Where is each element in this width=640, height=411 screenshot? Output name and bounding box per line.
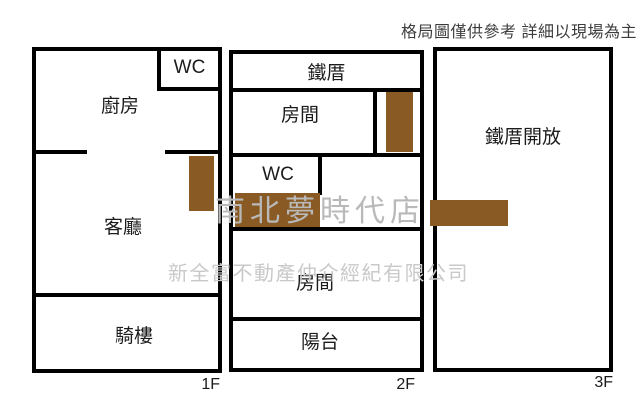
wall-kitchen-left xyxy=(32,150,87,154)
floorplan-canvas: 格局圖僅供參考 詳細以現場為主 WC 廚房 客廳 騎樓 1F 鐵厝 房間 WC xyxy=(0,0,640,411)
staircase-3f xyxy=(430,200,508,226)
disclaimer-text: 格局圖僅供參考 詳細以現場為主 xyxy=(401,18,637,42)
room-label-living: 客廳 xyxy=(73,216,173,240)
watermark-store-name: 南北夢時代店 xyxy=(215,186,425,230)
wall-kitchen-right xyxy=(165,150,222,154)
room-label-kitchen: 廚房 xyxy=(70,95,170,119)
wall-room-upper-right xyxy=(373,92,377,157)
staircase-1f xyxy=(189,156,214,211)
floor-label-2f: 2F xyxy=(371,376,415,394)
watermark-company-name: 新全富不動產仲介經紀有限公司 xyxy=(168,257,469,286)
wall-living-arcade xyxy=(32,293,222,297)
room-label-wc-1f: WC xyxy=(161,56,218,80)
floor-label-3f: 3F xyxy=(569,374,613,392)
room-wc-1f: WC xyxy=(157,51,218,91)
floorplan-3f: 鐵厝開放 xyxy=(433,47,613,372)
room-label-arcade: 騎樓 xyxy=(84,325,184,349)
room-label-balcony: 陽台 xyxy=(270,331,370,355)
room-label-open-iron-shed: 鐵厝開放 xyxy=(437,126,609,150)
room-label-iron-shed: 鐵厝 xyxy=(233,62,420,86)
wall-room-lower-bottom xyxy=(229,317,424,321)
floor-label-1f: 1F xyxy=(176,376,220,394)
staircase-2f-upper xyxy=(386,92,413,152)
room-label-room-upper: 房間 xyxy=(250,104,350,128)
room-label-wc-2f: WC xyxy=(228,163,328,187)
wall-room-upper-bottom xyxy=(229,153,424,157)
floorplan-1f: WC 廚房 客廳 騎樓 xyxy=(32,47,222,373)
